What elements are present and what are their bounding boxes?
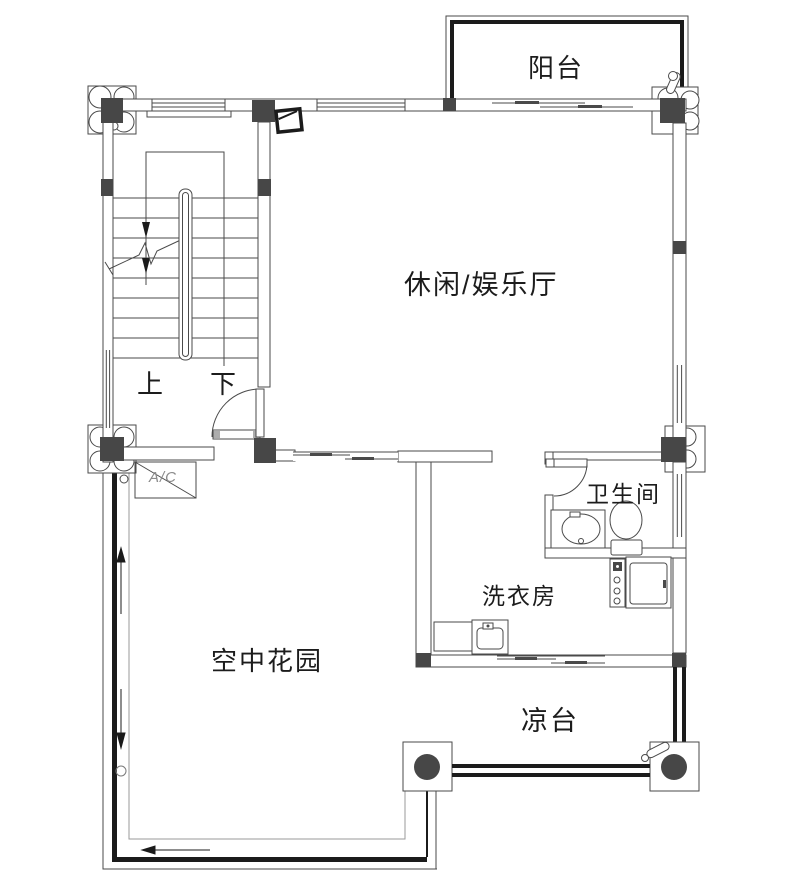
- door-bathroom: [546, 459, 587, 496]
- flue-symbol: [276, 109, 302, 132]
- balcony-label: 阳台: [528, 48, 584, 85]
- bathroom-label: 卫生间: [586, 475, 661, 509]
- staircase: [105, 152, 258, 366]
- terrace-label: 凉台: [521, 699, 579, 738]
- sliding-window-mid: [293, 452, 398, 461]
- washer-control-panel: [610, 559, 625, 607]
- columns: [100, 98, 686, 667]
- round-column-right: [661, 754, 687, 780]
- stair-up-label: 上: [137, 364, 165, 401]
- garden-label: 空中花园: [211, 641, 323, 678]
- walls: [103, 99, 686, 667]
- round-column-left: [414, 754, 440, 780]
- garden-path-arrows: [116, 548, 210, 854]
- washing-machine: [626, 557, 671, 608]
- sliding-door-laundry: [497, 656, 605, 667]
- bathroom-sink: [551, 510, 605, 548]
- laundry-label: 洗衣房: [482, 577, 557, 611]
- sliding-door-balcony: [492, 100, 633, 110]
- stair-down-label: 下: [210, 364, 238, 401]
- hall-label: 休闲/娱乐厅: [404, 263, 559, 302]
- floor-plan-drawing: [0, 0, 789, 884]
- laundry-counter: [434, 620, 508, 654]
- ac-unit-label: A/C: [149, 469, 177, 486]
- floor-plan: 阳台 休闲/娱乐厅 上 下 卫生间 洗衣房 空中花园 凉台 A/C: [0, 0, 789, 884]
- toilet: [610, 501, 642, 555]
